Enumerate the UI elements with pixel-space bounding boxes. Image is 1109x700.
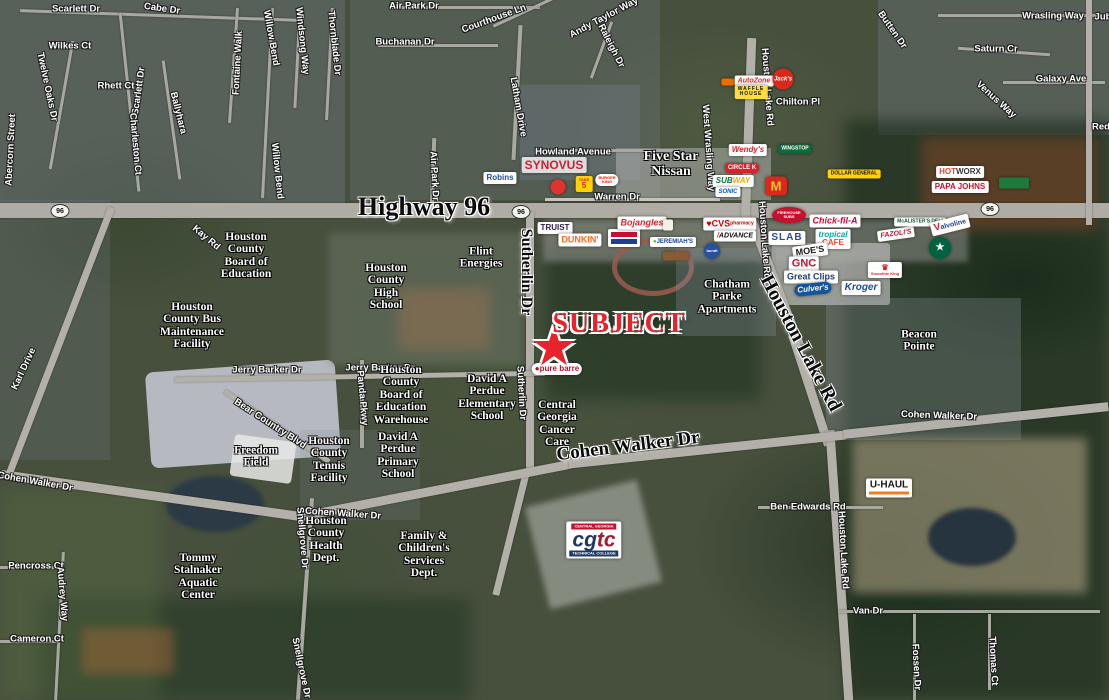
- street-label-cohen-walker-dr: Cohen Walker Dr: [901, 410, 977, 422]
- street-label-chilton-pl: Chilton Pl: [776, 97, 820, 107]
- place-label-family-children-s-services-dept: Family &Children'sServicesDept.: [398, 530, 450, 580]
- place-label-line: Education: [221, 268, 272, 280]
- place-label-line: County: [221, 244, 272, 256]
- place-label-line: Children's: [398, 543, 450, 555]
- circle-k-logo: CIRCLE K: [725, 163, 759, 173]
- place-label-line: Chatham: [698, 278, 757, 290]
- place-label-line: Flint: [460, 246, 503, 258]
- place-label-line: David A: [458, 373, 515, 385]
- place-label-line: Field: [234, 457, 278, 469]
- wingstop-logo: WINGSTOP: [778, 145, 811, 154]
- place-label-houston-county-board-of-education: HoustonCountyBoard ofEducation: [221, 231, 272, 281]
- place-label-line: County: [308, 448, 350, 460]
- slab-logo: SLAB: [768, 231, 805, 245]
- place-label-line: Elementary: [458, 398, 515, 410]
- place-label-line: Facility: [160, 338, 224, 350]
- synovus-logo: SYNOVUS: [522, 157, 587, 173]
- street-label-wrasling-way: Wrasling Way: [1022, 11, 1084, 21]
- sonic-logo-text: SONIC: [718, 189, 737, 195]
- street-label-jub: Jub: [1095, 12, 1109, 22]
- dunkin-logo: DUNKIN': [558, 234, 601, 247]
- moes-logo-text: MOE'S: [795, 245, 825, 258]
- place-label-line: Nissan: [644, 164, 699, 179]
- cgtc-logo-text: TECHNICAL COLLEGE: [569, 551, 618, 557]
- pond: [928, 508, 1016, 566]
- major-road-label-highway-96: Highway 96: [358, 194, 490, 220]
- slab-logo-text: SLAB: [771, 233, 802, 243]
- place-label-line: Center: [174, 589, 222, 601]
- place-label-line: Family &: [398, 530, 450, 542]
- place-label-david-a-perdue-elementary-school: David APerdueElementarySchool: [458, 373, 515, 423]
- place-label-line: Pointe: [901, 341, 937, 353]
- place-label-houston-county-bus-maintenance-facility: HoustonCounty BusMaintenanceFacility: [160, 301, 224, 351]
- nothing-bundt-cakes-logo: bundt: [704, 243, 720, 259]
- firehouse-subs-logo: FIREHOUSESUBS: [772, 207, 806, 223]
- street-label-buchanan-dr: Buchanan Dr: [375, 37, 434, 47]
- place-label-david-a-perdue-primary-school: David APerduePrimarySchool: [377, 431, 419, 481]
- hotworx-logo-span: WORX: [956, 168, 981, 176]
- small-orange-logo: [722, 79, 735, 86]
- place-label-line: Perdue: [458, 386, 515, 398]
- red-blue-banner-logo-text: [611, 239, 637, 244]
- place-label-tommy-stalnaker-aquatic-center: TommyStalnakerAquaticCenter: [174, 552, 222, 602]
- place-label-line: Care: [537, 436, 577, 448]
- smoothie-king-logo: ♛Smoothie King: [868, 262, 902, 278]
- take-5-logo: TAKE5: [576, 176, 593, 192]
- take-5-logo-text: 5: [582, 182, 586, 190]
- street-label-sutherlin-dr: Sutherlin Dr: [515, 366, 527, 421]
- highway-96-shield: 96: [981, 202, 1000, 216]
- chick-fil-a-logo-text: Chick-fil-A: [813, 217, 858, 226]
- place-label-line: Primary: [377, 456, 419, 468]
- street-label-fossen-dr: Fossen Dr: [910, 644, 922, 691]
- gnc-logo-text: GNC: [792, 259, 816, 270]
- place-label-line: Five Star: [644, 149, 699, 164]
- street-label-ben-edwards-rd: Ben Edwards Rd: [770, 502, 846, 512]
- truist-logo: TRUIST: [538, 222, 573, 234]
- circle-k-logo-text: CIRCLE K: [728, 165, 756, 171]
- street-label-van-dr: Van Dr: [853, 606, 883, 616]
- street-label-jerry-barker-dr: Jerry Barker Dr: [232, 365, 301, 375]
- bojangles-logo-text: Bojangles: [620, 219, 663, 228]
- place-label-line: Tommy: [174, 552, 222, 564]
- place-label-line: David A: [377, 431, 419, 443]
- culvers-logo-text: Culver's: [797, 283, 829, 294]
- cgtc-logo-span: tc: [597, 530, 616, 551]
- wingstop-logo-text: WINGSTOP: [781, 147, 808, 152]
- place-label-central-georgia-cancer-care: CentralGeorgiaCancerCare: [537, 399, 577, 449]
- place-label-houston-county-high-school: HoustonCountyHighSchool: [365, 262, 407, 312]
- place-label-five-star-nissan: Five StarNissan: [644, 149, 699, 179]
- side-road: [1086, 0, 1092, 225]
- place-label-line: Central: [537, 399, 577, 411]
- great-clips-logo: Great Clips: [784, 271, 838, 284]
- firehouse-subs-logo-text: SUBS: [783, 215, 794, 219]
- place-label-houston-county-health-dept: HoustonCountyHealthDept.: [305, 515, 347, 565]
- place-label-line: Parke: [698, 291, 757, 303]
- place-label-line: Houston: [305, 515, 347, 527]
- place-label-line: Houston: [365, 262, 407, 274]
- place-label-line: Houston: [374, 364, 429, 376]
- place-label-line: Energies: [460, 258, 503, 270]
- place-label-line: Houston: [160, 301, 224, 313]
- small-brown-logo: [663, 252, 689, 261]
- street-label-thomas-ct: Thomas Ct: [987, 636, 999, 686]
- fazolis-logo-text: FAZOLI'S: [880, 228, 912, 239]
- valvoline-logo-span: alvoline: [940, 218, 967, 231]
- wendys-logo-text: Wendy's: [732, 146, 764, 154]
- place-label-line: School: [377, 468, 419, 480]
- highway-96-shield: 96: [51, 204, 70, 218]
- major-road-label-sutherlin-dr: Sutherlin Dr: [518, 229, 534, 316]
- place-label-line: School: [458, 410, 515, 422]
- place-label-line: County: [374, 376, 429, 388]
- starbucks-logo: ★: [929, 237, 951, 259]
- green-sign-logo: [999, 178, 1029, 189]
- place-label-line: County: [365, 275, 407, 287]
- hotworx-logo-text: HOTWORX: [939, 168, 981, 176]
- sonic-logo: SONIC: [715, 187, 740, 197]
- place-label-line: Education: [374, 401, 429, 413]
- robins-financial-logo-text: Robins: [486, 174, 513, 182]
- jacks-logo: Jack's: [773, 69, 794, 90]
- papa-johns-logo: PAPA JOHNS: [932, 181, 989, 193]
- dollar-general-logo-text: DOLLAR GENERAL: [831, 172, 878, 177]
- subway-logo-text: SUBWAY: [716, 177, 751, 185]
- place-label-line: Houston: [308, 435, 350, 447]
- cgtc-logo-span: cg: [572, 530, 597, 551]
- street-label-galaxy-ave: Galaxy Ave: [1036, 74, 1087, 84]
- street-label-howland-avenue: Howland Avenue: [535, 147, 611, 157]
- robins-financial-logo: Robins: [483, 172, 516, 184]
- place-label-line: Dept.: [305, 552, 347, 564]
- gnc-logo: GNC: [789, 257, 819, 272]
- street-label-scarlett-dr: Scarlett Dr: [52, 4, 100, 14]
- synovus-logo-text: SYNOVUS: [525, 159, 584, 171]
- cvs-pharmacy-logo-text: ♥CVS pharmacy: [706, 220, 753, 229]
- street-label-kay-rd: Kay Rd: [190, 224, 221, 252]
- jeremiahs-logo: ● JEREMIAH'S: [650, 237, 696, 247]
- place-label-beacon-pointe: BeaconPointe: [901, 329, 937, 354]
- subway-logo-span: WAY: [733, 177, 751, 185]
- place-label-flint-energies: FlintEnergies: [460, 246, 503, 271]
- place-label-houston-county-tennis-facility: HoustonCountyTennisFacility: [308, 435, 350, 485]
- place-label-line: Warehouse: [374, 414, 429, 426]
- subway-logo: SUBWAY: [713, 175, 754, 187]
- place-label-line: Facility: [308, 472, 350, 484]
- kroger-logo-text: Kroger: [845, 283, 878, 293]
- subway-logo-span: SUB: [716, 177, 733, 185]
- u-haul-logo-text: [869, 492, 909, 495]
- place-label-line: Dept.: [398, 567, 450, 579]
- kroger-logo: Kroger: [842, 281, 881, 295]
- subject-label: SUBJECT: [552, 308, 685, 340]
- jeremiahs-logo-span: JEREMIAH'S: [657, 239, 693, 245]
- place-label-line: Stalnaker: [174, 565, 222, 577]
- place-label-freedom-field: FreedomField: [234, 445, 278, 470]
- place-label-chatham-parke-apartments: ChathamParkeApartments: [698, 278, 757, 315]
- place-label-line: Perdue: [377, 444, 419, 456]
- place-label-line: Georgia: [537, 412, 577, 424]
- cvs-pharmacy-logo-span: CVS: [712, 220, 731, 229]
- place-label-line: Health: [305, 540, 347, 552]
- residential-area: [0, 200, 110, 460]
- bojangles-logo: Bojangles: [617, 217, 666, 230]
- place-label-line: High: [365, 287, 407, 299]
- red-blue-banner-logo-text: [611, 232, 637, 237]
- street-label-warren-dr: Warren Dr: [594, 192, 640, 202]
- burger-king-logo-text: KING: [602, 180, 612, 184]
- highway-96-shield: 96: [512, 205, 531, 219]
- place-label-line: Apartments: [698, 303, 757, 315]
- place-label-line: Aquatic: [174, 577, 222, 589]
- place-label-line: Tennis: [308, 460, 350, 472]
- place-label-line: Houston: [221, 231, 272, 243]
- hotworx-logo: HOTWORX: [936, 166, 984, 178]
- place-label-line: Maintenance: [160, 326, 224, 338]
- place-label-line: County: [305, 528, 347, 540]
- truist-logo-text: TRUIST: [541, 224, 570, 232]
- papa-johns-logo-text: PAPA JOHNS: [935, 183, 986, 191]
- place-label-line: School: [365, 299, 407, 311]
- place-label-line: Freedom: [234, 445, 278, 457]
- wendys-logo: Wendy's: [729, 144, 767, 156]
- advance-auto-logo-span: ADVANCE: [719, 233, 753, 240]
- street-label-cameron-ct: Cameron Ct: [10, 634, 64, 644]
- smoothie-king-logo-text: Smoothie King: [871, 272, 899, 276]
- autozone-logo-text: AutoZone: [738, 78, 771, 85]
- red-blue-banner-logo: [608, 229, 640, 247]
- street-label-red: Red: [1092, 122, 1109, 132]
- u-haul-logo: U-HAUL: [866, 479, 912, 498]
- waffle-house-logo: WAFFLEHOUSE: [735, 85, 768, 99]
- highway-96-road: [0, 203, 1109, 218]
- great-clips-logo-text: Great Clips: [787, 273, 835, 282]
- hotworx-logo-span: HOT: [939, 168, 956, 176]
- place-label-line: County Bus: [160, 314, 224, 326]
- dirt-patch: [82, 628, 174, 674]
- mcdonalds-logo-text: M: [771, 180, 782, 193]
- cgtc-logo: CENTRAL GEORGIAcgtcTECHNICAL COLLEGE: [566, 522, 621, 559]
- starbucks-logo-text: ★: [936, 243, 945, 253]
- u-haul-logo-text: U-HAUL: [870, 481, 908, 491]
- cgtc-logo-text: cgtc: [572, 530, 615, 551]
- street-label-rhett-ct: Rhett Ct: [98, 81, 135, 91]
- chick-fil-a-logo: Chick-fil-A: [810, 215, 861, 228]
- dunkin-logo-text: DUNKIN': [561, 236, 598, 245]
- street-label-saturn-cr: Saturn Cr: [974, 44, 1017, 54]
- nothing-bundt-cakes-logo-text: bundt: [706, 249, 717, 253]
- place-label-line: Beacon: [901, 329, 937, 341]
- waffle-house-logo-text: HOUSE: [740, 92, 763, 97]
- advance-auto-logo: /ADVANCE: [714, 231, 756, 242]
- place-label-line: Services: [398, 555, 450, 567]
- mcdonalds-logo: M: [765, 177, 787, 196]
- jacks-logo-text: Jack's: [774, 76, 792, 82]
- place-label-line: Board of: [374, 389, 429, 401]
- street-label-air-park-dr: Air Park Dr: [389, 1, 439, 11]
- cvs-pharmacy-logo: ♥CVS pharmacy: [703, 218, 756, 231]
- small-sign-logo: [663, 220, 673, 231]
- dollar-general-logo: DOLLAR GENERAL: [828, 170, 881, 179]
- sutherlin-dr-road: [492, 468, 530, 596]
- place-label-houston-county-board-of-education-warehouse: HoustonCountyBoard ofEducationWarehouse: [374, 364, 429, 426]
- place-label-line: Board of: [221, 256, 272, 268]
- street-label-wilkes-ct: Wilkes Ct: [49, 41, 92, 51]
- jeremiahs-logo-text: ● JEREMIAH'S: [653, 239, 693, 245]
- aerial-map: 969696Scarlett DrCabe DrAir Park DrAndy …: [0, 0, 1109, 700]
- cvs-pharmacy-logo-span: pharmacy: [730, 222, 754, 227]
- red-circle-logo: [551, 180, 566, 195]
- burger-king-logo: BURGERKING: [595, 174, 618, 186]
- advance-auto-logo-text: /ADVANCE: [717, 233, 753, 240]
- place-label-line: Cancer: [537, 424, 577, 436]
